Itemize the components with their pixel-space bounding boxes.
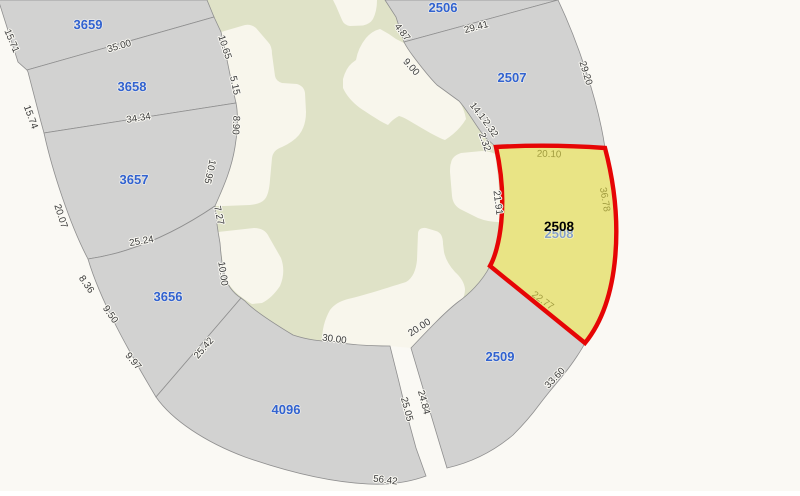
svg-text:4096: 4096 (272, 402, 301, 417)
svg-text:3656: 3656 (154, 289, 183, 304)
svg-text:3658: 3658 (118, 79, 147, 94)
svg-text:2507: 2507 (498, 70, 527, 85)
svg-text:2506: 2506 (429, 0, 458, 15)
svg-text:3657: 3657 (120, 172, 149, 187)
svg-text:2509: 2509 (486, 349, 515, 364)
svg-text:3659: 3659 (74, 17, 103, 32)
svg-text:8.90: 8.90 (229, 115, 241, 135)
svg-text:2508: 2508 (544, 219, 575, 234)
